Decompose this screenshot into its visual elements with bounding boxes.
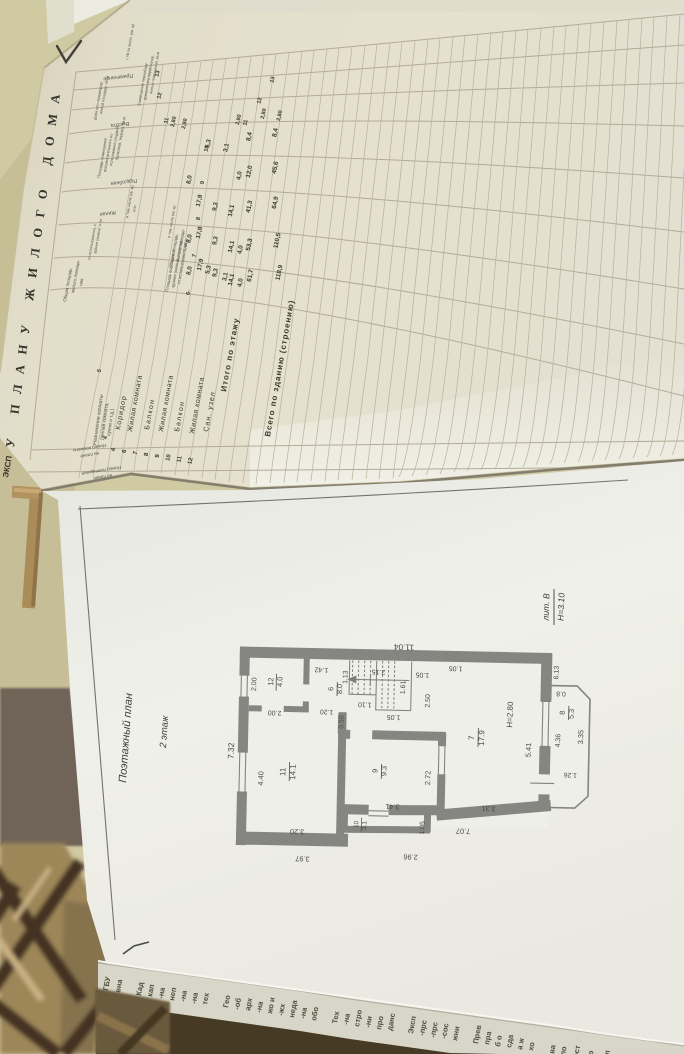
svg-text:3.20: 3.20 (290, 827, 305, 837)
svg-text:11: 11 (163, 117, 170, 124)
svg-text:Н=3.10: Н=3.10 (556, 593, 567, 622)
svg-text:1.10: 1.10 (358, 700, 372, 708)
svg-text:5.3: 5.3 (566, 709, 575, 719)
svg-text:2.00: 2.00 (268, 708, 282, 716)
svg-text:1.42: 1.42 (314, 665, 328, 673)
svg-text:8: 8 (558, 711, 567, 715)
svg-text:1.26: 1.26 (563, 771, 577, 779)
svg-text:8.0: 8.0 (335, 684, 344, 694)
svg-text:3.97: 3.97 (295, 854, 310, 864)
svg-text:3.41: 3.41 (385, 802, 400, 812)
svg-text:12: 12 (156, 92, 163, 99)
svg-text:1.05: 1.05 (449, 664, 463, 672)
svg-text:7.32: 7.32 (226, 742, 237, 759)
svg-text:2.15: 2.15 (371, 668, 385, 676)
svg-text:12: 12 (266, 677, 275, 686)
svg-text:6: 6 (326, 687, 335, 691)
svg-text:2 этаж: 2 этаж (158, 715, 171, 749)
svg-text:7.07: 7.07 (456, 826, 471, 836)
svg-text:4.36: 4.36 (555, 734, 563, 748)
svg-text:1.05: 1.05 (415, 671, 429, 679)
svg-text:1.61: 1.61 (400, 680, 408, 694)
svg-text:9: 9 (370, 769, 379, 773)
svg-text:11: 11 (278, 767, 287, 776)
svg-text:2.96: 2.96 (403, 852, 418, 862)
svg-text:3.35: 3.35 (576, 730, 586, 745)
svg-text:10: 10 (353, 820, 360, 828)
svg-text:13: 13 (269, 76, 276, 83)
svg-text:0.8: 0.8 (556, 690, 566, 697)
svg-text:2.72: 2.72 (423, 771, 433, 786)
svg-text:4.40: 4.40 (256, 771, 266, 786)
svg-text:5.41: 5.41 (524, 743, 534, 758)
svg-text:12: 12 (256, 97, 263, 104)
svg-text:0.50: 0.50 (338, 715, 346, 729)
svg-text:9.3: 9.3 (379, 766, 388, 777)
svg-text:H=2.80: H=2.80 (505, 701, 515, 728)
svg-text:лит. В: лит. В (540, 593, 551, 622)
svg-text:3.1: 3.1 (361, 821, 368, 831)
svg-text:2.00: 2.00 (251, 677, 259, 691)
svg-text:6.13: 6.13 (553, 666, 561, 680)
svg-text:1.05: 1.05 (386, 713, 400, 721)
svg-text:1.20: 1.20 (320, 708, 334, 716)
svg-text:1.05: 1.05 (419, 821, 427, 835)
svg-text:13: 13 (154, 70, 161, 77)
svg-text:3.31: 3.31 (481, 804, 496, 814)
svg-text:11.04: 11.04 (393, 642, 414, 653)
svg-text:1.13: 1.13 (342, 670, 350, 684)
svg-text:2.50: 2.50 (425, 694, 433, 708)
svg-text:11: 11 (242, 119, 249, 126)
